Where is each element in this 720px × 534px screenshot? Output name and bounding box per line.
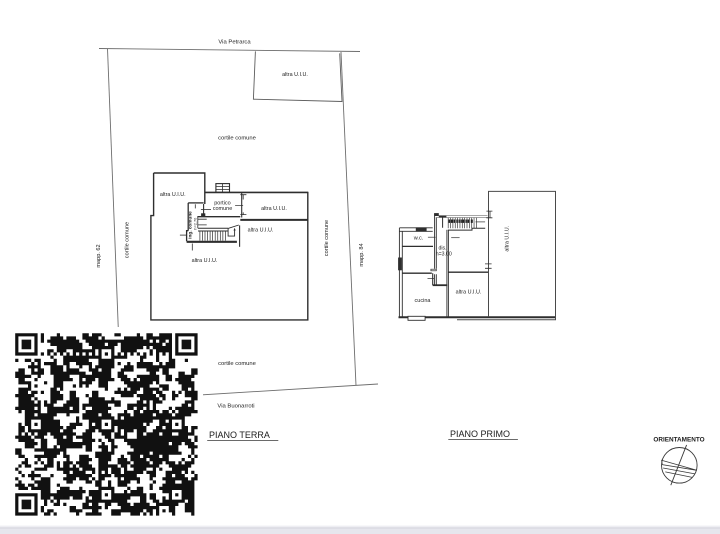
svg-text:PIANO TERRA: PIANO TERRA (209, 430, 270, 440)
svg-text:altra U.I.U.: altra U.I.U. (282, 72, 308, 78)
svg-text:Via Petrarca: Via Petrarca (218, 40, 251, 46)
svg-text:altra U.I.U.: altra U.I.U. (261, 206, 287, 212)
svg-text:cortile comune: cortile comune (218, 136, 256, 142)
svg-text:Via Buonarroti: Via Buonarroti (217, 404, 254, 410)
svg-text:mapp. 84: mapp. 84 (359, 243, 365, 266)
svg-text:w.c.: w.c. (413, 235, 424, 241)
svg-text:altra U.I.U.: altra U.I.U. (248, 228, 274, 234)
svg-text:mapp. 62: mapp. 62 (96, 244, 102, 267)
svg-text:h=3.00: h=3.00 (436, 251, 452, 257)
svg-text:ORIENTAMENTO: ORIENTAMENTO (653, 437, 704, 444)
svg-text:PIANO PRIMO: PIANO PRIMO (450, 429, 510, 439)
svg-text:cucina: cucina (415, 298, 432, 304)
svg-text:altra U.I.U.: altra U.I.U. (160, 192, 186, 198)
svg-text:altra U.I.U.: altra U.I.U. (456, 290, 482, 296)
svg-text:cortile comune: cortile comune (218, 361, 256, 367)
svg-text:h=2.70: h=2.70 (192, 217, 197, 230)
svg-text:cortile comune: cortile comune (324, 220, 330, 256)
svg-text:altra U.I.U.: altra U.I.U. (505, 226, 511, 252)
svg-text:comune: comune (213, 206, 233, 212)
svg-text:cortile comune: cortile comune (125, 222, 131, 258)
svg-text:altra U.I.U.: altra U.I.U. (192, 258, 218, 264)
